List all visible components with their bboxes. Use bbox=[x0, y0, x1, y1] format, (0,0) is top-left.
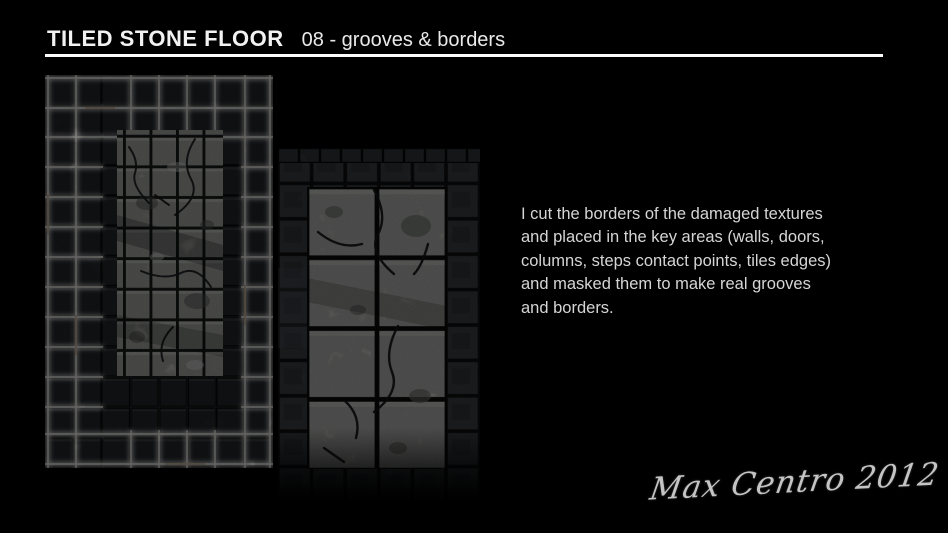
description-line: columns, steps contact points, tiles edg… bbox=[521, 250, 871, 274]
left-texture-image bbox=[45, 75, 273, 468]
description-line: I cut the borders of the damaged texture… bbox=[521, 203, 871, 227]
title-underline bbox=[45, 54, 883, 57]
description-line: and placed in the key areas (walls, door… bbox=[521, 226, 871, 250]
description-line: and masked them to make real grooves bbox=[521, 273, 871, 297]
page-subtitle: 08 - grooves & borders bbox=[302, 29, 505, 51]
slide-header: TILED STONE FLOOR08 - grooves & borders bbox=[47, 26, 505, 52]
page-title: TILED STONE FLOOR bbox=[47, 26, 284, 51]
right-texture-image bbox=[278, 148, 480, 505]
description-paragraph: I cut the borders of the damaged texture… bbox=[521, 203, 871, 321]
slide-canvas: TILED STONE FLOOR08 - grooves & borders bbox=[0, 0, 948, 533]
artist-signature: Max Centro 2012 bbox=[647, 456, 942, 507]
description-line: and borders. bbox=[521, 297, 871, 321]
